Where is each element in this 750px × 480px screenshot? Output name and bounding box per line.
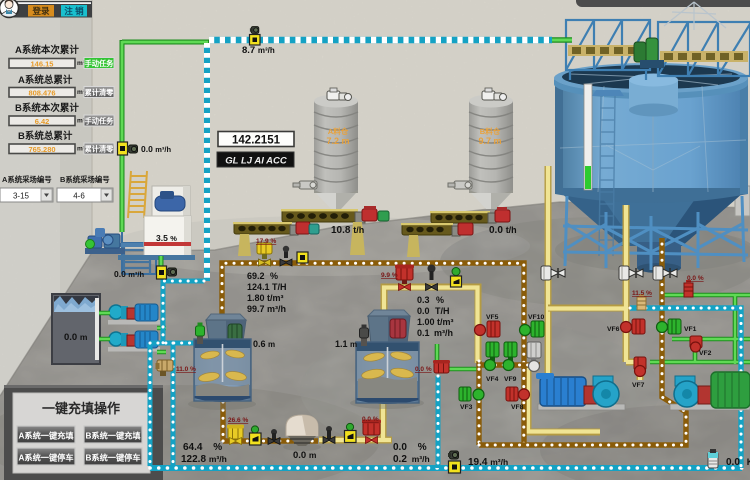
svg-text:登录: 登录	[31, 6, 50, 16]
svg-text:0.0 %: 0.0 %	[687, 275, 704, 282]
svg-text:9.7 m: 9.7 m	[478, 136, 501, 146]
svg-text:B系统一键充填: B系统一键充填	[85, 431, 141, 441]
svg-text:4-6: 4-6	[73, 192, 85, 201]
svg-text:19.4 m³/h: 19.4 m³/h	[468, 457, 508, 468]
svg-text:1.00 t/m³: 1.00 t/m³	[417, 317, 454, 327]
svg-text:26.6 %: 26.6 %	[228, 417, 248, 424]
svg-text:3-15: 3-15	[13, 192, 30, 201]
svg-text:17.9 %: 17.9 %	[256, 238, 276, 245]
svg-text:0.3 %: 0.3 %	[417, 295, 444, 305]
svg-text:B系统总累计: B系统总累计	[18, 130, 73, 142]
svg-text:VF4: VF4	[486, 376, 499, 383]
svg-text:7.2 m: 7.2 m	[326, 136, 349, 146]
svg-text:手动任务: 手动任务	[85, 59, 115, 68]
svg-text:765.280: 765.280	[28, 145, 55, 154]
svg-text:0.0 m³/h: 0.0 m³/h	[141, 144, 171, 154]
svg-text:10.8 t/h: 10.8 t/h	[331, 225, 364, 236]
svg-text:B系统本次累计: B系统本次累计	[15, 102, 79, 114]
svg-text:一键充填操作: 一键充填操作	[42, 401, 120, 416]
svg-text:VF3: VF3	[460, 404, 473, 411]
svg-text:累计清零: 累计清零	[85, 145, 115, 154]
svg-text:注 销: 注 销	[64, 6, 84, 16]
svg-text:VF7: VF7	[632, 382, 645, 389]
svg-text:146.15: 146.15	[31, 60, 54, 69]
svg-text:VF9: VF9	[504, 376, 517, 383]
svg-text:GL LJ AI ACC: GL LJ AI ACC	[225, 156, 287, 167]
svg-text:0.0 m: 0.0 m	[293, 450, 317, 461]
svg-text:VF6: VF6	[607, 326, 620, 333]
svg-text:124.1 T/H: 124.1 T/H	[247, 282, 287, 292]
svg-text:11.0 %: 11.0 %	[176, 366, 196, 373]
svg-text:A系统本次累计: A系统本次累计	[15, 44, 79, 56]
svg-text:0.0 t/h: 0.0 t/h	[489, 225, 517, 236]
svg-text:A系统采场编号: A系统采场编号	[2, 175, 52, 184]
svg-text:99.7 m³/h: 99.7 m³/h	[247, 304, 286, 314]
svg-text:0.0 %: 0.0 %	[415, 366, 432, 373]
svg-text:11.5 %: 11.5 %	[632, 290, 652, 297]
svg-text:VF8: VF8	[511, 404, 524, 411]
svg-text:VF1: VF1	[684, 326, 697, 333]
svg-text:A系统一键充填: A系统一键充填	[18, 431, 74, 441]
svg-text:808.476: 808.476	[28, 89, 55, 98]
svg-text:8.7 m³/h: 8.7 m³/h	[242, 45, 275, 56]
svg-text:B料仓: B料仓	[480, 126, 501, 136]
svg-text:0.0 Kp: 0.0 Kp	[726, 457, 750, 468]
svg-text:B系统采场编号: B系统采场编号	[60, 175, 110, 184]
svg-text:9.9 %: 9.9 %	[381, 272, 398, 279]
svg-text:0.1 m³/h: 0.1 m³/h	[417, 328, 453, 338]
svg-text:1.1 m: 1.1 m	[335, 339, 357, 349]
svg-text:A系统总累计: A系统总累计	[18, 74, 73, 86]
svg-text:手动任务: 手动任务	[85, 117, 115, 126]
svg-text:6.42: 6.42	[35, 117, 50, 126]
svg-text:0.0 m: 0.0 m	[64, 332, 88, 343]
svg-text:142.2151: 142.2151	[232, 135, 281, 147]
svg-text:69.2 %: 69.2 %	[247, 271, 278, 281]
svg-text:64.4 %: 64.4 %	[183, 442, 222, 453]
svg-text:B系统一键停车: B系统一键停车	[85, 453, 140, 463]
svg-text:122.8 m³/h: 122.8 m³/h	[181, 454, 227, 465]
svg-text:0.6 m: 0.6 m	[253, 339, 275, 349]
svg-text:A料仓: A料仓	[328, 126, 349, 136]
svg-text:0.0 %: 0.0 %	[362, 416, 379, 423]
svg-text:VF2: VF2	[699, 350, 712, 357]
svg-text:0.0 m³/h: 0.0 m³/h	[114, 269, 144, 279]
svg-text:VF5: VF5	[486, 314, 499, 321]
svg-text:0.2 m³/h: 0.2 m³/h	[393, 454, 430, 465]
svg-text:累计清零: 累计清零	[85, 88, 115, 97]
svg-text:3.5 %: 3.5 %	[156, 233, 177, 243]
svg-text:A系统一键停车: A系统一键停车	[18, 453, 73, 463]
svg-text:VF10: VF10	[528, 314, 544, 321]
svg-text:1.80 t/m³: 1.80 t/m³	[247, 293, 284, 303]
